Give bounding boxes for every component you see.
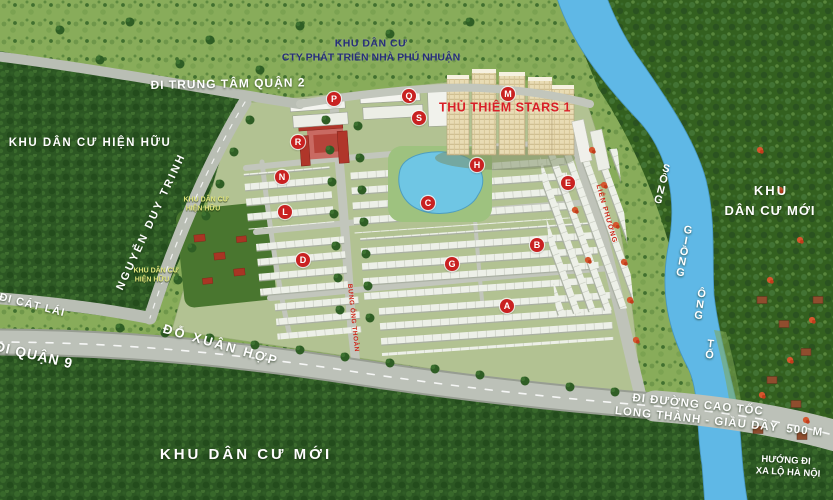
block-marker-s: S: [412, 111, 426, 125]
label-to-district2: ĐI TRUNG TÂM QUẬN 2: [150, 76, 305, 91]
label-new-area-right-line1: KHU: [754, 184, 788, 198]
label-new-area-right-line2: DÂN CƯ MỚI: [724, 204, 815, 218]
block-marker-d: D: [296, 253, 310, 267]
label-project-name: THỦ THIÊM STARS 1: [439, 101, 571, 114]
block-marker-e: E: [561, 176, 575, 190]
block-marker-g: G: [445, 257, 459, 271]
block-marker-b: B: [530, 238, 544, 252]
label-existing-small-1-line2: HIỆN HỮU: [186, 205, 221, 212]
label-existing-small-1-line1: KHU DÂN CƯ: [183, 196, 228, 203]
label-existing-small-2-line2: HIỆN HỮU: [135, 276, 170, 283]
block-marker-c: C: [421, 196, 435, 210]
label-river-word-to: TỐ: [705, 339, 716, 361]
block-marker-m: M: [501, 87, 515, 101]
block-marker-h: H: [470, 158, 484, 172]
label-new-area-bottom: KHU DÂN CƯ MỚI: [160, 447, 332, 463]
block-marker-a: A: [500, 299, 514, 313]
block-marker-n: N: [275, 170, 289, 184]
block-marker-r: R: [291, 135, 305, 149]
label-top-area-line2: CTY PHÁT TRIỂN NHÀ PHÚ NHUẬN: [282, 52, 460, 63]
masterplan-map: KHU DÂN CƯ CTY PHÁT TRIỂN NHÀ PHÚ NHUẬN …: [0, 0, 833, 500]
block-marker-l: L: [278, 205, 292, 219]
label-top-area-line1: KHU DÂN CƯ: [335, 38, 408, 49]
block-marker-q: Q: [402, 89, 416, 103]
block-marker-p: P: [327, 92, 341, 106]
label-existing-area-left: KHU DÂN CƯ HIỆN HỮU: [9, 137, 172, 149]
label-existing-small-2-line1: KHU DÂN CƯ: [133, 267, 178, 274]
